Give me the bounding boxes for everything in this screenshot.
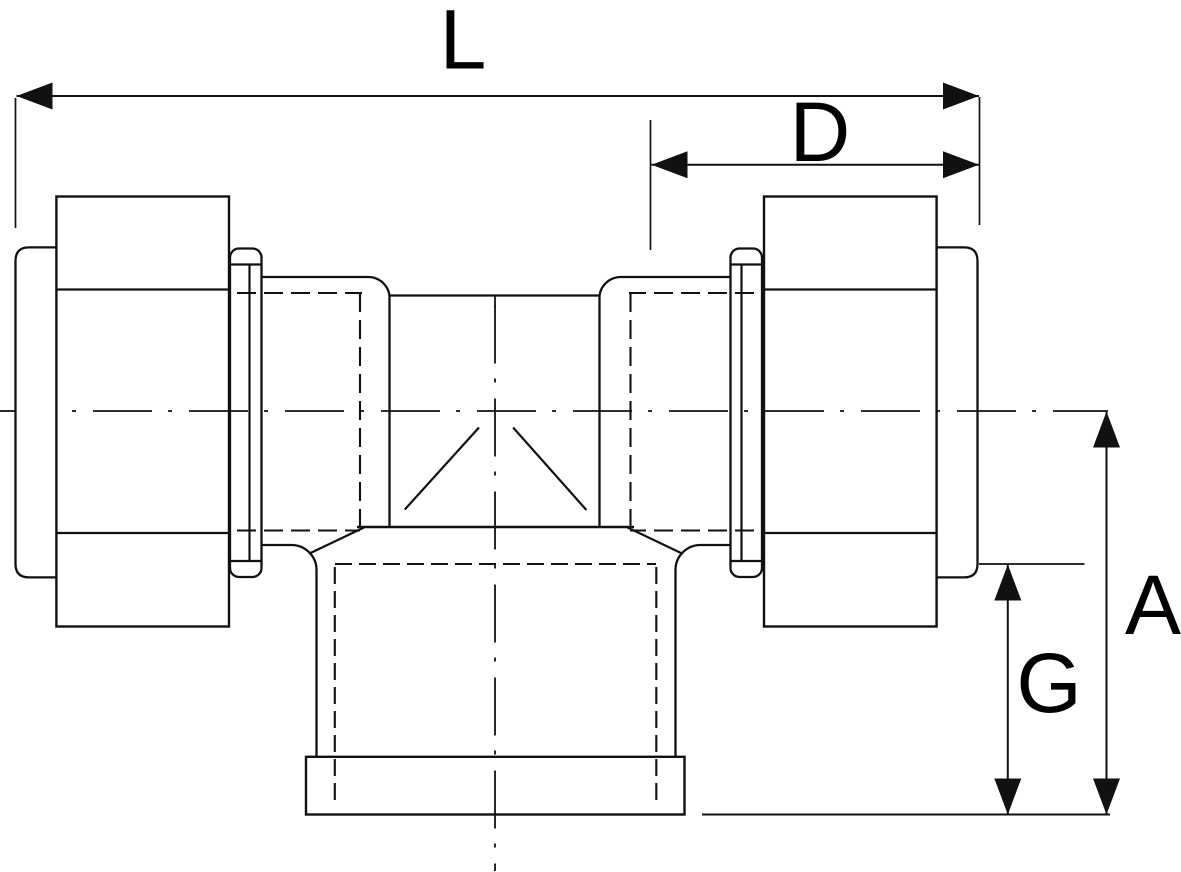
svg-text:L: L <box>440 0 487 87</box>
svg-text:A: A <box>1125 558 1181 652</box>
svg-text:D: D <box>790 85 851 179</box>
svg-text:G: G <box>1016 636 1081 730</box>
